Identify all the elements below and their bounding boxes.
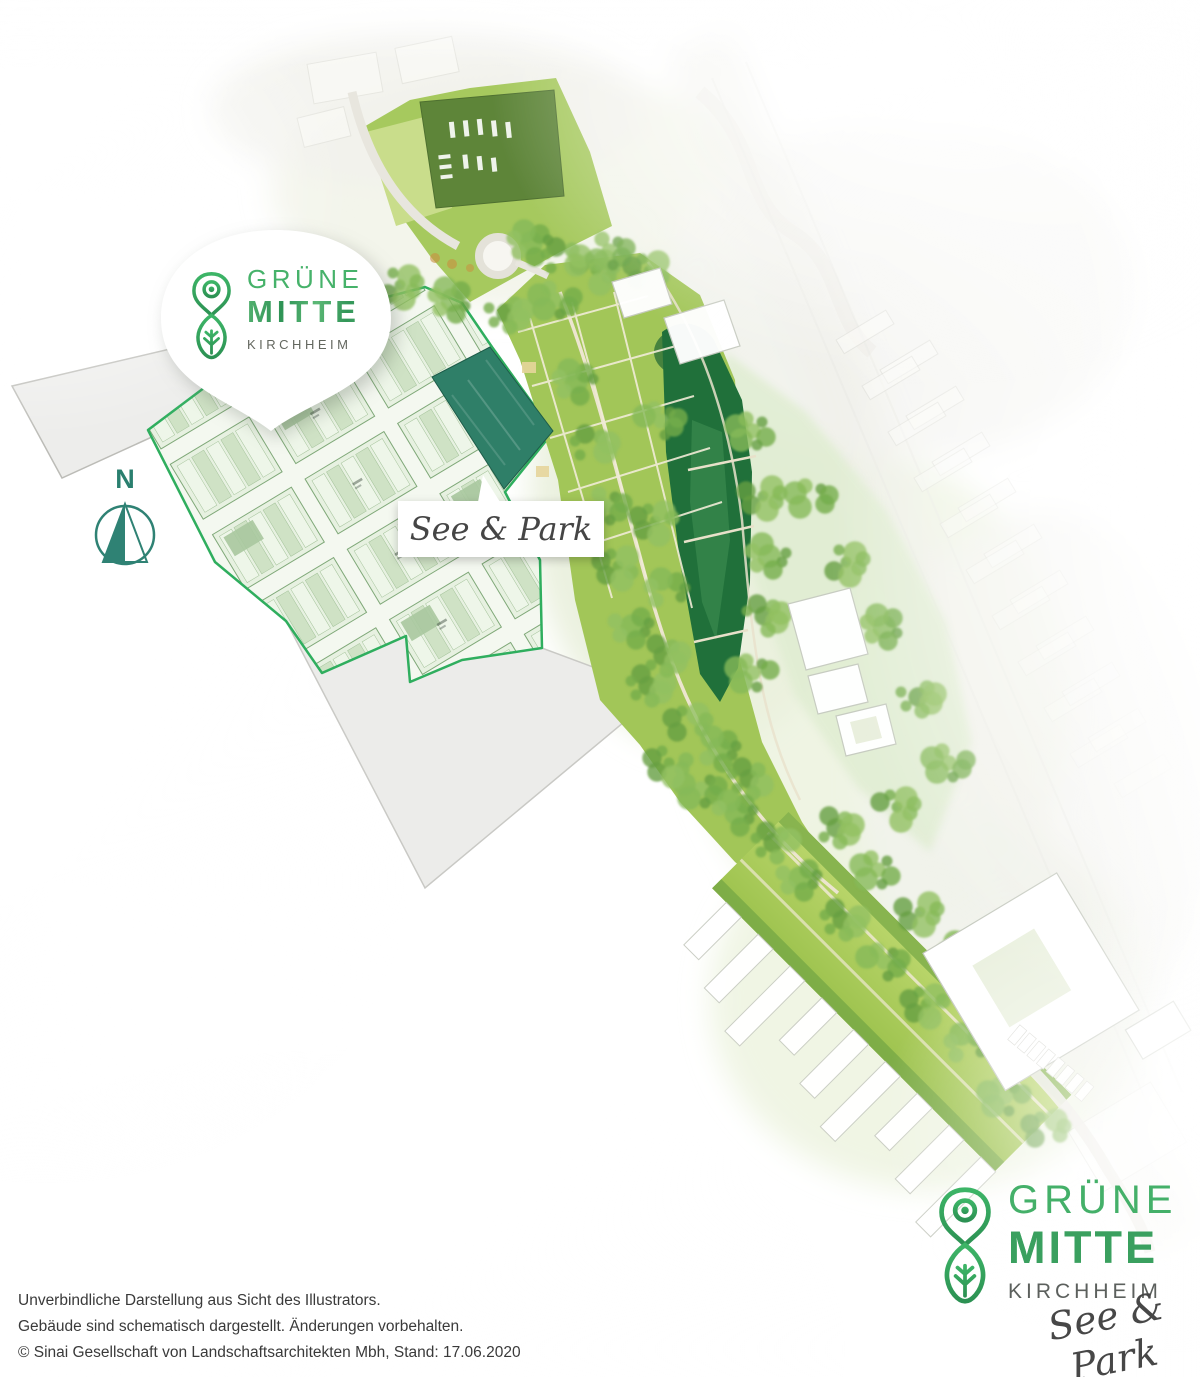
grune-mitte-logo: GRÜNE MITTE KIRCHHEIM See & Park	[930, 1168, 1198, 1373]
label-pointer	[478, 475, 500, 502]
site-plan-page: GRÜNE MITTE KIRCHHEIM N See & Park Unver…	[0, 0, 1200, 1377]
disclaimer-line-2: Gebäude sind schematisch dargestellt. Än…	[18, 1314, 521, 1340]
see-park-label-text: See & Park	[410, 510, 592, 548]
school-building	[420, 90, 564, 208]
badge-brand-bottom: KIRCHHEIM	[247, 338, 363, 352]
pin-leaf-icon	[189, 261, 234, 371]
badge-brand-top: GRÜNE	[247, 266, 363, 293]
grune-mitte-badge: GRÜNE MITTE KIRCHHEIM	[158, 224, 398, 444]
pin-leaf-icon	[935, 1176, 995, 1316]
compass-north: N	[86, 466, 164, 574]
disclaimer-line-3: © Sinai Gesellschaft von Landschaftsarch…	[18, 1340, 521, 1366]
badge-brand-mid: MITTE	[247, 296, 363, 329]
logo-brand-top: GRÜNE	[1008, 1180, 1177, 1221]
disclaimer-line-1: Unverbindliche Darstellung aus Sicht des…	[18, 1288, 521, 1314]
compass-icon	[88, 495, 162, 573]
disclaimer: Unverbindliche Darstellung aus Sicht des…	[18, 1288, 521, 1366]
logo-brand-mid: MITTE	[1008, 1225, 1177, 1271]
compass-n-label: N	[115, 466, 135, 493]
see-park-map-label: See & Park	[398, 501, 604, 557]
